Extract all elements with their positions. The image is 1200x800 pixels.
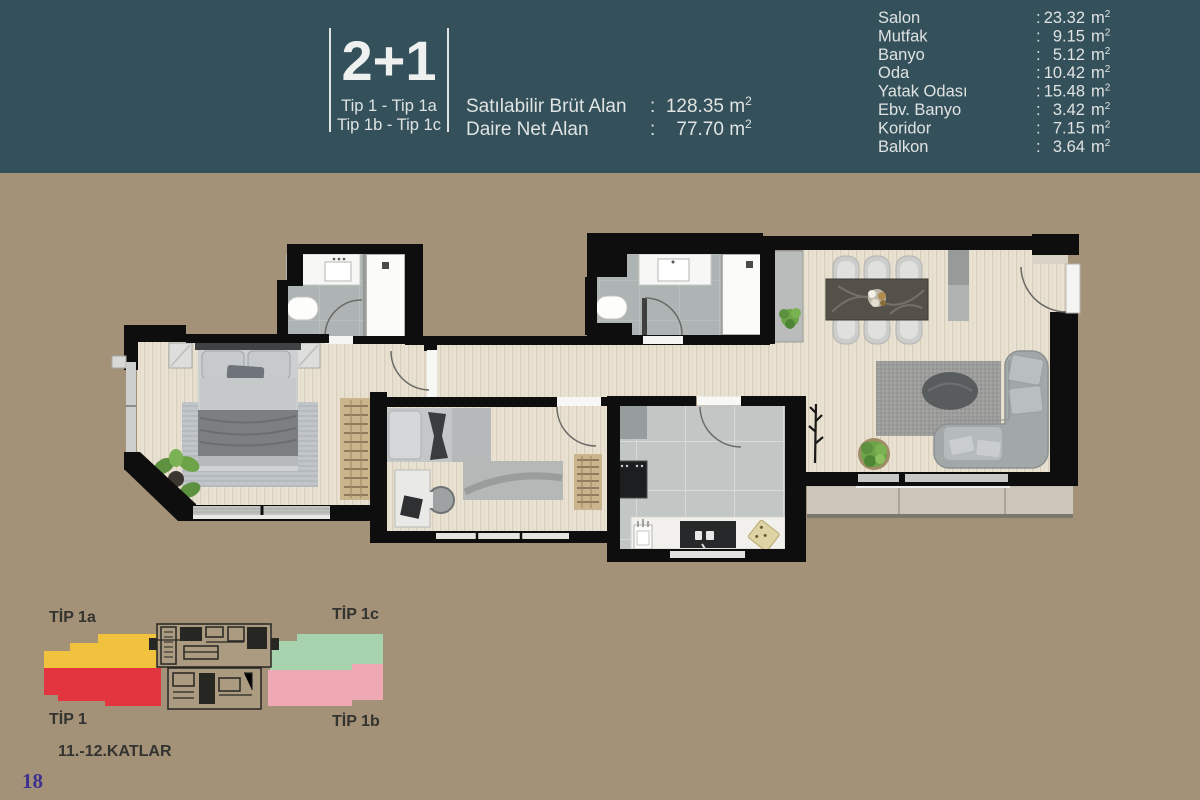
svg-text:15.48: 15.48 [1044, 83, 1085, 101]
svg-text:TİP 1: TİP 1 [49, 710, 87, 728]
svg-text::: : [1036, 83, 1041, 101]
svg-text::: : [1036, 138, 1041, 156]
svg-text:18: 18 [22, 769, 43, 793]
svg-text:TİP 1c: TİP 1c [332, 605, 379, 623]
svg-text:Yatak Odası: Yatak Odası [878, 83, 968, 101]
svg-text:Salon: Salon [878, 9, 920, 27]
svg-text:Koridor: Koridor [878, 119, 932, 137]
svg-text:5.12: 5.12 [1053, 46, 1085, 64]
svg-text:Ebv. Banyo: Ebv. Banyo [878, 101, 961, 119]
svg-text:TİP 1b: TİP 1b [332, 712, 380, 730]
svg-text:TİP 1a: TİP 1a [49, 608, 96, 626]
svg-text:Mutfak: Mutfak [878, 27, 928, 45]
svg-text::: : [1036, 119, 1041, 137]
svg-text:Tip 1 - Tip 1a: Tip 1 - Tip 1a [341, 97, 438, 115]
svg-text:Daire Net Alan: Daire Net Alan [466, 119, 589, 140]
svg-text::: : [1036, 9, 1041, 27]
svg-text:Balkon: Balkon [878, 138, 928, 156]
svg-text:9.15: 9.15 [1053, 27, 1085, 45]
svg-text:Satılabilir Brüt Alan: Satılabilir Brüt Alan [466, 96, 627, 117]
svg-text:2+1: 2+1 [342, 29, 437, 92]
svg-text:3.64: 3.64 [1053, 138, 1085, 156]
svg-text:: 77.70 m2: : 77.70 m2 [650, 117, 752, 140]
svg-text:10.42: 10.42 [1044, 64, 1085, 82]
svg-text::: : [1036, 64, 1041, 82]
svg-text:23.32: 23.32 [1044, 9, 1085, 27]
svg-text::: : [1036, 46, 1041, 64]
svg-text:Oda: Oda [878, 64, 910, 82]
svg-text:: 128.35 m2: : 128.35 m2 [650, 94, 752, 117]
svg-text:Tip 1b - Tip 1c: Tip 1b - Tip 1c [337, 116, 441, 134]
svg-text:7.15: 7.15 [1053, 119, 1085, 137]
svg-text:3.42: 3.42 [1053, 101, 1085, 119]
svg-text::: : [1036, 101, 1041, 119]
svg-text:Banyo: Banyo [878, 46, 925, 64]
svg-text:11.-12.KATLAR: 11.-12.KATLAR [58, 743, 172, 760]
svg-text::: : [1036, 27, 1041, 45]
